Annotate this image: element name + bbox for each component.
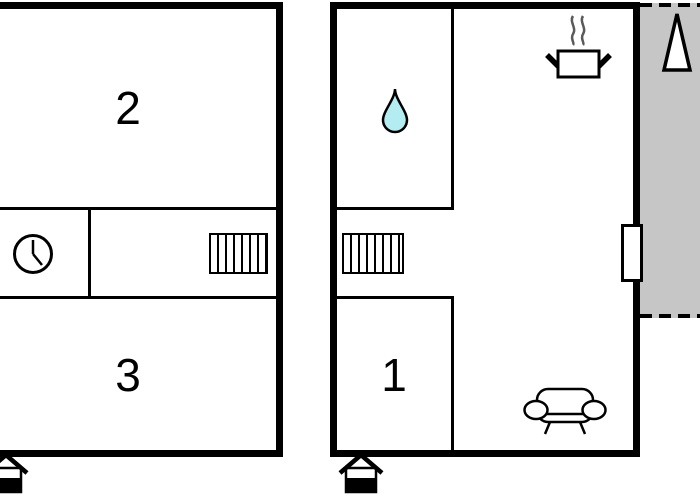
stairs-icon	[209, 233, 268, 274]
wall	[0, 450, 283, 457]
north-arrow-icon	[661, 11, 693, 73]
door-icon	[621, 224, 643, 282]
wall	[330, 2, 337, 457]
terrace-dashed-edge-bottom	[640, 314, 700, 318]
room-1-label: 1	[337, 299, 451, 450]
sofa-icon	[522, 383, 614, 437]
clock-icon	[12, 233, 54, 275]
room-2-label: 2	[0, 9, 266, 207]
interior-wall	[451, 299, 454, 450]
entrance-icon	[0, 452, 30, 494]
interior-wall	[451, 9, 454, 210]
interior-wall	[88, 210, 91, 296]
interior-wall	[337, 207, 454, 210]
steam-icon	[572, 16, 584, 45]
wall	[276, 2, 283, 457]
room-3-label: 3	[0, 299, 266, 450]
entrance-icon	[337, 452, 385, 494]
interior-wall	[0, 207, 276, 210]
terrace-dashed-edge-top	[640, 3, 700, 7]
stairs-icon	[342, 233, 404, 274]
wall	[0, 2, 283, 9]
water-drop-icon	[381, 87, 409, 135]
wall	[330, 2, 640, 9]
floor-plan: 2 3 1	[0, 0, 700, 500]
cooking-pot-icon	[541, 12, 616, 82]
